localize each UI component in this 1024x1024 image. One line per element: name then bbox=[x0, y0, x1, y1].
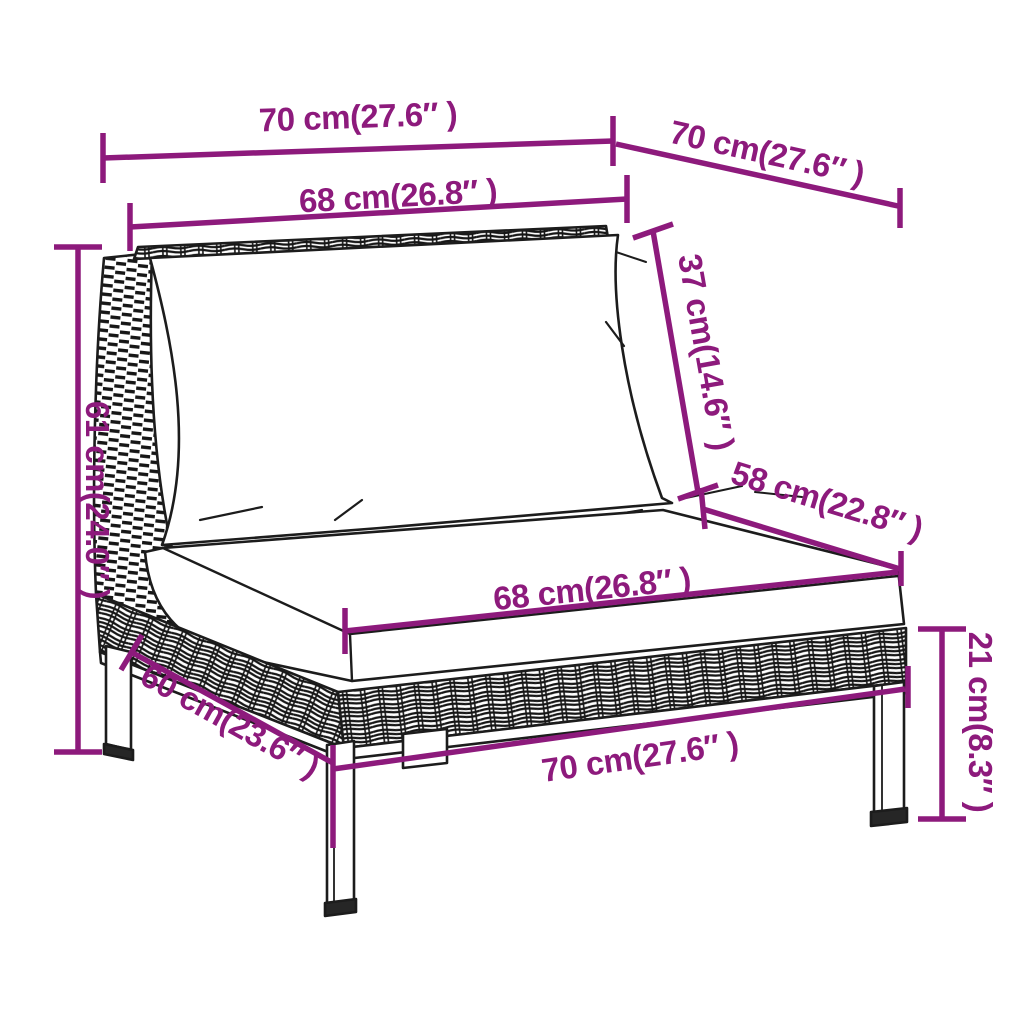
back-cushion bbox=[150, 235, 672, 545]
label-top-width: 70 cm(27.6″ ) bbox=[258, 95, 457, 140]
front-right-leg bbox=[874, 682, 904, 816]
front-left-leg-foot bbox=[325, 899, 356, 916]
front-right-leg-foot bbox=[871, 808, 907, 826]
dim-line-top-width bbox=[103, 141, 613, 158]
label-seat-height: 21 cm(8.3″ ) bbox=[961, 632, 999, 812]
base-bracket bbox=[403, 729, 447, 768]
label-total-height: 61 cm(24.0″ ) bbox=[78, 401, 116, 599]
dimension-diagram: 70 cm(27.6″ ) 70 cm(27.6″ ) 68 cm(26.8″ … bbox=[0, 0, 1024, 1024]
